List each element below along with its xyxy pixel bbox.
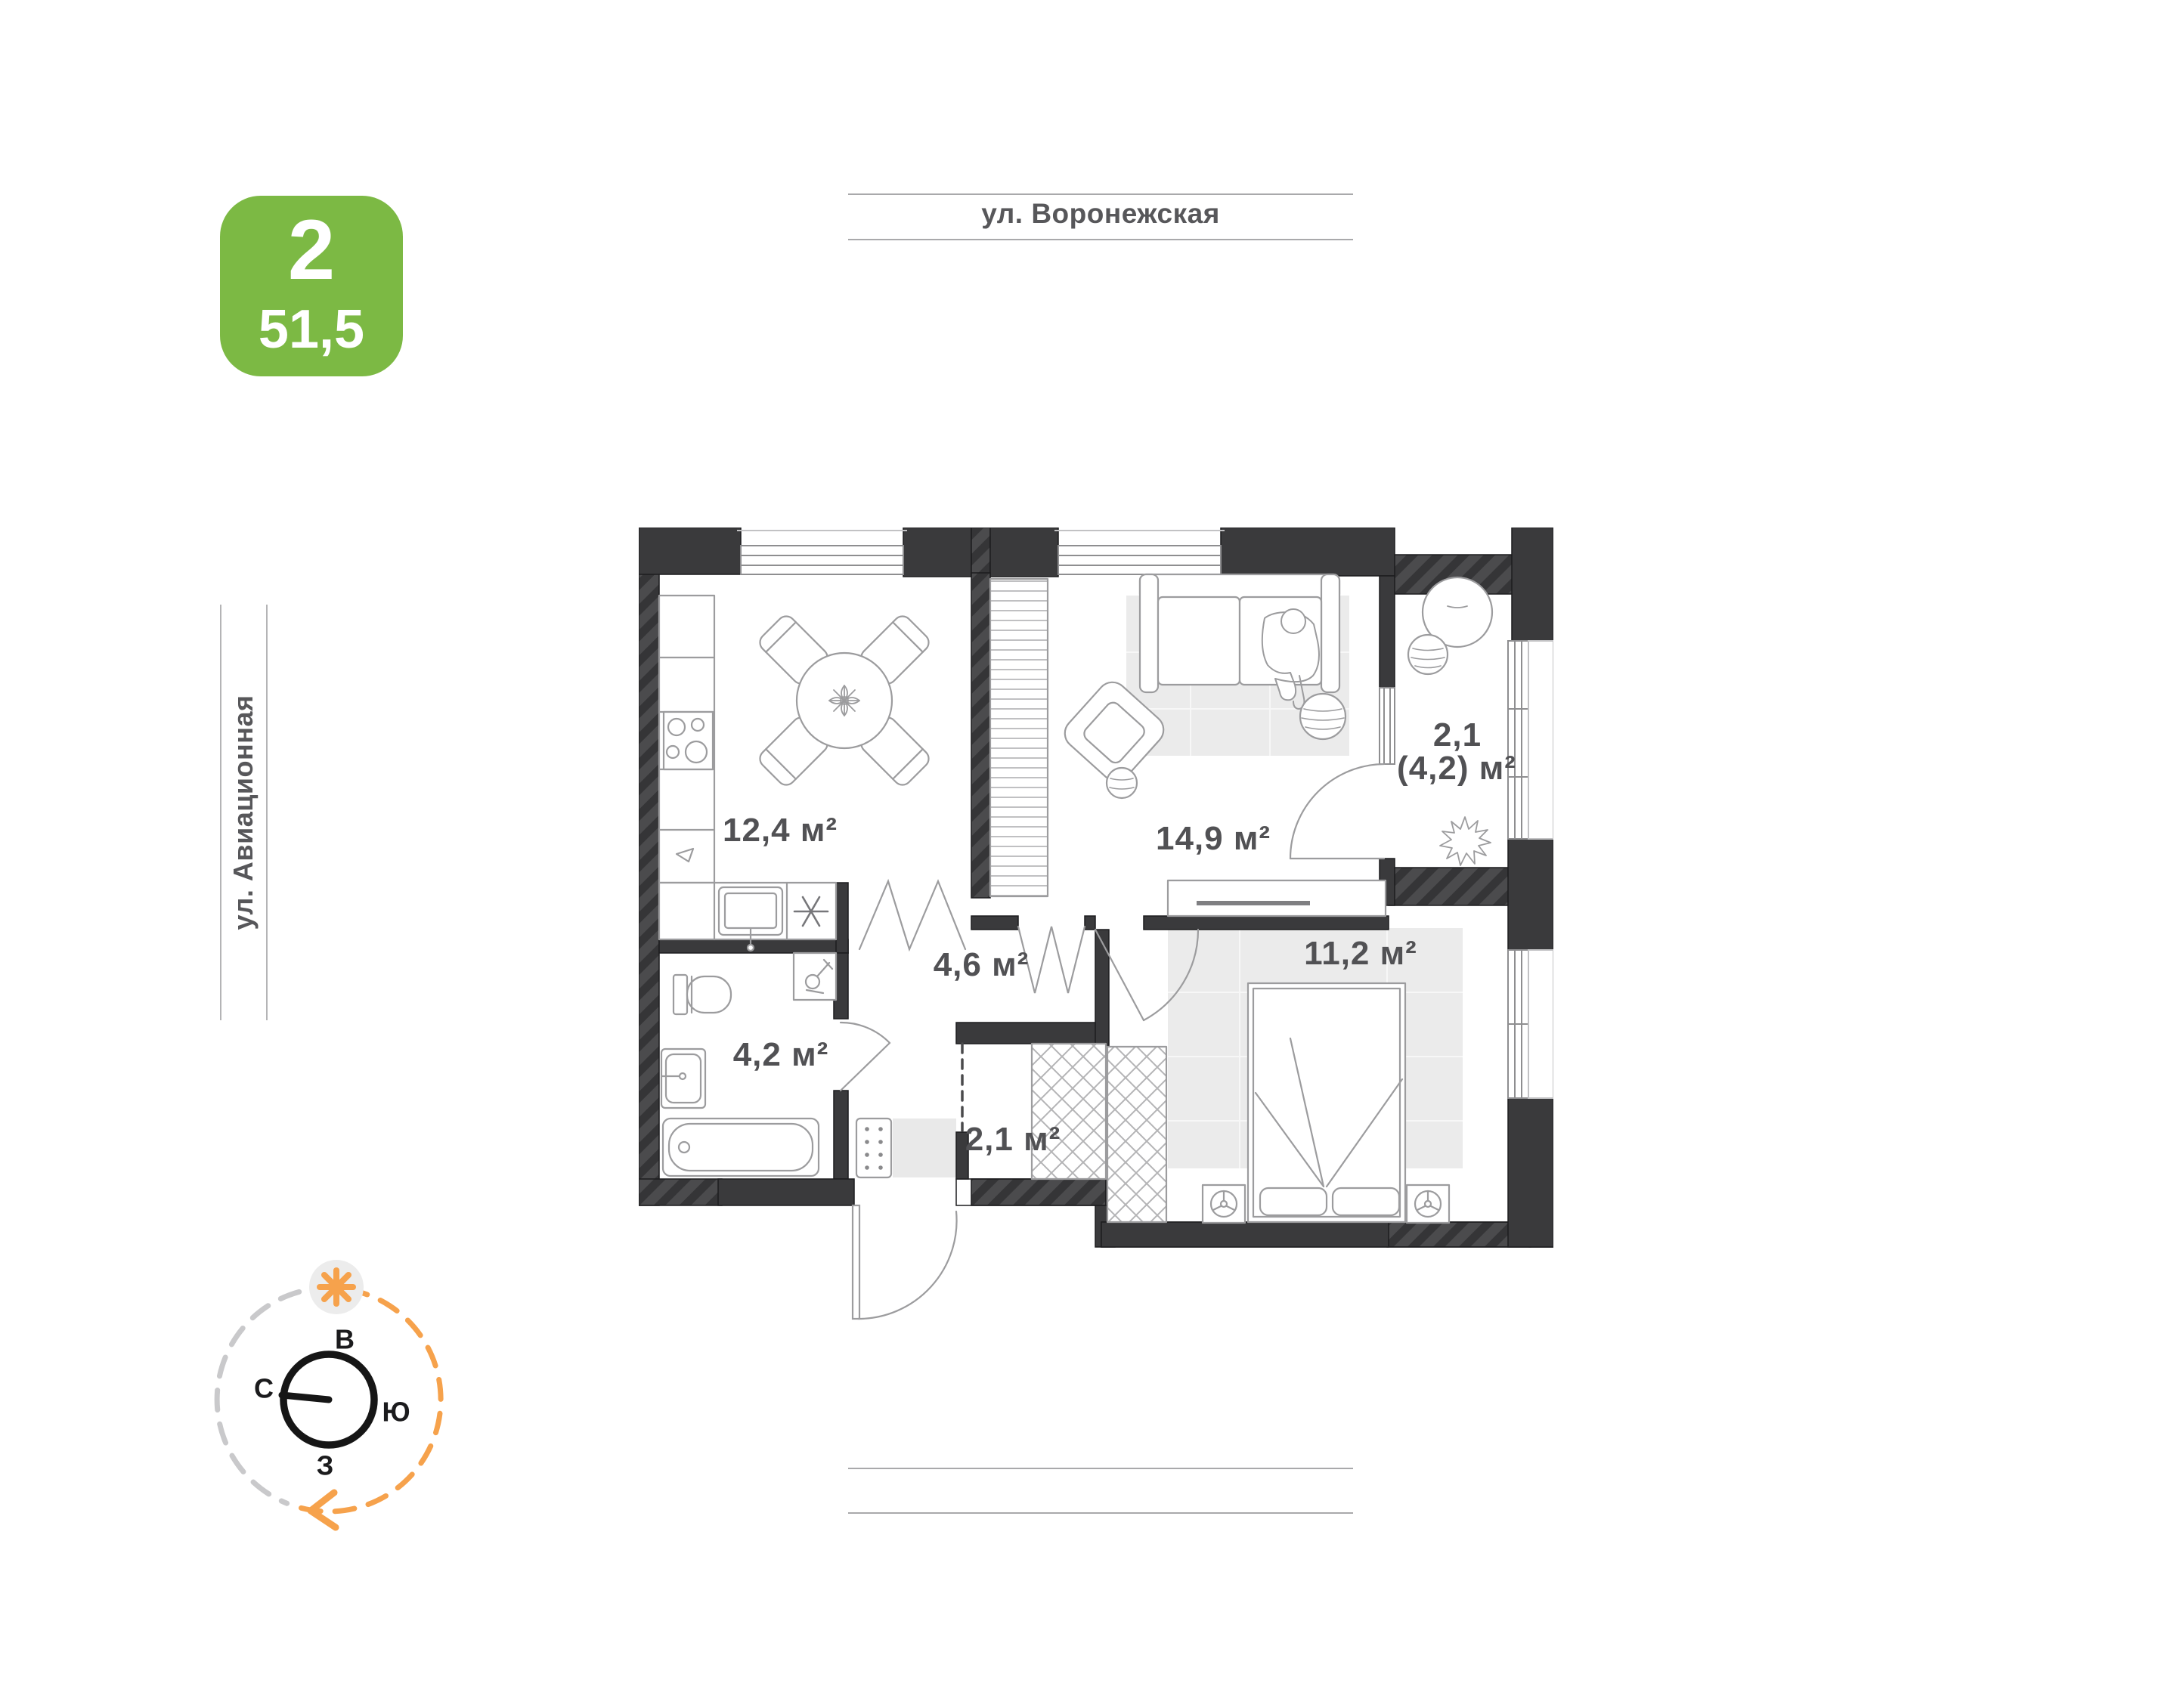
floorplan-page: { "badge": { "rooms_count": "2", "total_… [0, 0, 2177, 1708]
closet-area-label: 2,1 м² [965, 1121, 1061, 1159]
street-top-line-lower [848, 239, 1353, 240]
shower-icon [794, 953, 836, 1000]
toilet-icon [674, 975, 731, 1014]
nightstand-right [1407, 1185, 1449, 1223]
compass-west-label: З [317, 1450, 334, 1481]
compass-needle [282, 1395, 329, 1400]
side-table-icon [1107, 768, 1137, 798]
balcony-plant-icon [1440, 817, 1491, 865]
living-wardrobe [990, 579, 1048, 896]
compass: В С Ю З [185, 1249, 480, 1551]
nightstand-left [1203, 1185, 1245, 1223]
street-left-line-outer [220, 605, 221, 1020]
closet-wardrobe [1032, 1044, 1106, 1179]
street-left-line-inner [266, 605, 268, 1020]
washbasin-icon [661, 1049, 705, 1108]
bed [1248, 983, 1405, 1222]
balcony-stool-icon [1408, 635, 1448, 674]
living-area-label: 14,9 м² [1156, 820, 1271, 858]
dining-table [757, 613, 933, 789]
furniture [659, 574, 1492, 1223]
street-name-top: ул. Воронежская [848, 198, 1353, 230]
entrance-door [853, 1205, 957, 1319]
kitchen-door [859, 881, 965, 949]
balcony-area-reduced: 2,1 [1433, 716, 1482, 754]
compass-east-label: В [335, 1324, 355, 1355]
bedroom-area-label: 11,2 м² [1304, 935, 1417, 973]
doormat-icon [856, 1119, 891, 1177]
compass-south-label: Ю [382, 1397, 410, 1428]
bedroom-wardrobe [1107, 1047, 1166, 1222]
total-area: 51,5 [259, 300, 364, 360]
kitchen-area-label: 12,4 м² [723, 812, 838, 849]
bathtub-icon [663, 1119, 819, 1176]
bathroom-area-label: 4,2 м² [733, 1036, 829, 1074]
street-top-line-upper [848, 193, 1353, 195]
balcony-door [1290, 764, 1384, 859]
sun-icon [309, 1260, 364, 1314]
compass-north-label: С [254, 1373, 274, 1404]
stove-icon [664, 712, 713, 769]
apartment-badge: 2 51,5 [220, 196, 403, 376]
rooms-count: 2 [288, 208, 335, 292]
hallway-area-label: 4,6 м² [934, 946, 1030, 984]
compass-arrow-icon [311, 1493, 336, 1527]
table-flower-icon [829, 685, 859, 716]
street-name-left: ул. Авиационная [228, 695, 259, 930]
tv-console [1168, 880, 1386, 916]
street-bottom-line-lower [848, 1512, 1353, 1514]
pouf-icon [1300, 694, 1346, 739]
street-bottom-line-upper [848, 1468, 1353, 1469]
bathroom-door [841, 1023, 890, 1091]
balcony-area-full: (4,2) м² [1397, 750, 1516, 787]
